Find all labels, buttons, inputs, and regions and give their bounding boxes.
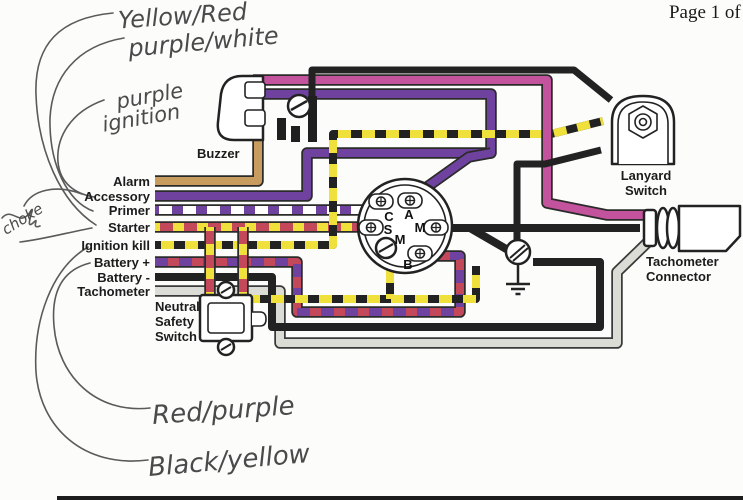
scanned-wiring-diagram-page: C A S M M B	[0, 0, 743, 500]
terminal-label-A: A	[404, 207, 414, 222]
buzzer-component	[218, 76, 317, 142]
terminal-A	[398, 193, 422, 208]
wire-key-m-black	[447, 228, 640, 250]
tachometer-connector-label: Tachometer Connector	[646, 254, 719, 284]
terminal-S	[359, 220, 383, 235]
buzzer-terminal-top	[245, 82, 265, 98]
tachometer-connector-label-line1: Tachometer	[646, 254, 719, 269]
harness-label-accessory: Accessory	[0, 189, 150, 204]
ignition-switch: C A S M M B	[358, 179, 452, 273]
terminal-label-S: S	[384, 222, 393, 237]
buzzer-terminal-bottom	[245, 110, 265, 126]
harness-label-battery-minus: Battery -	[0, 270, 150, 285]
tachometer-connector-component	[644, 206, 740, 251]
terminal-label-M: M	[415, 220, 426, 235]
harness-label-ignition-kill: Ignition kill	[0, 238, 150, 253]
nss-label-line2: Safety	[155, 314, 200, 329]
pencil-leader-lines	[2, 13, 150, 461]
scan-bottom-edge	[57, 496, 743, 500]
terminal-C	[369, 194, 393, 209]
nss-label-line3: Switch	[155, 329, 200, 344]
terminal-M	[424, 220, 448, 235]
buzzer-bracket	[277, 118, 286, 140]
ground-point	[506, 240, 530, 294]
neutral-safety-switch-label: Neutral Safety Switch	[155, 299, 200, 344]
buzzer-label: Buzzer	[197, 146, 240, 161]
terminal-label-B: B	[403, 257, 412, 272]
harness-label-alarm: Alarm	[0, 174, 150, 189]
page-number: Page 1 of 1	[669, 2, 743, 24]
lanyard-switch-label: Lanyard Switch	[598, 168, 694, 198]
harness-label-tachometer: Tachometer	[0, 284, 150, 299]
terminal-label-M2: M	[395, 232, 406, 247]
tachometer-connector-label-line2: Connector	[646, 269, 719, 284]
lanyard-switch-component	[612, 96, 674, 164]
harness-label-battery-plus: Battery +	[0, 255, 150, 270]
nss-label-line1: Neutral	[155, 299, 200, 314]
